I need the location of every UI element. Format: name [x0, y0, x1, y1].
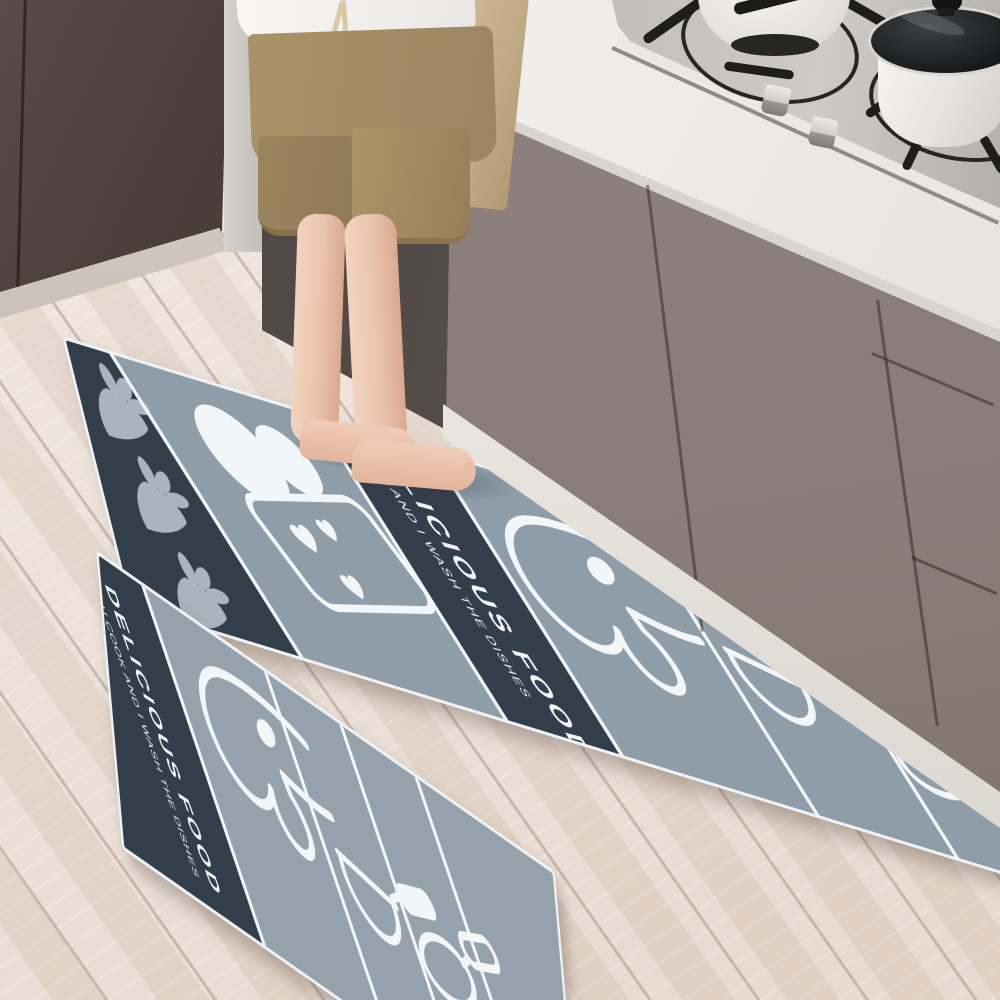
left-leg: [290, 213, 346, 447]
kitchen-scene: DELICIOUS FOOD ...AND I WASH THE DISHES: [0, 0, 1000, 1000]
pot-lid-knob-stem: [938, 8, 954, 16]
ladle-icon: [327, 821, 464, 993]
kettle-base: [731, 34, 819, 56]
